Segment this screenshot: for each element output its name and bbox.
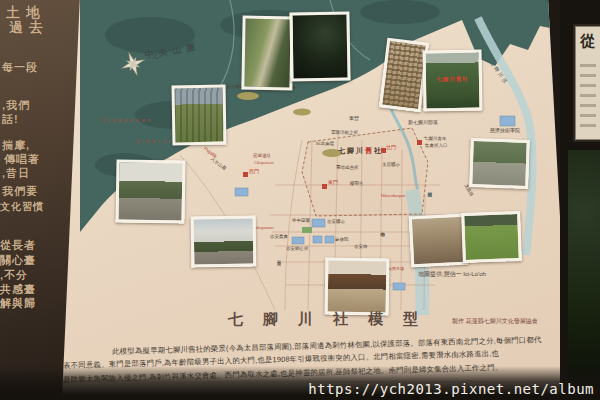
map-credit: 製作 花蓮縣七腳川文化發展協會: [452, 317, 538, 326]
panel-text-fragment: 關心臺: [0, 253, 36, 268]
map-label: Cipaponan: [102, 118, 153, 124]
plaque-text: 從: [575, 32, 600, 51]
map-label: 新七腳川部落: [408, 120, 438, 126]
map-photo-street: [191, 215, 257, 267]
map-photo-aerial: [379, 38, 429, 113]
plaque-smudge: [580, 57, 596, 127]
old-settlement-post: 社: [374, 147, 383, 154]
map-label: 西門: [249, 169, 259, 175]
map-label: Cikapuican: [254, 161, 274, 166]
map-label: 電信組合所: [336, 165, 359, 170]
panel-text-fragment: 揣摩,: [2, 138, 30, 153]
panel-text-fragment: 話!: [2, 112, 19, 127]
map-label: 慈濟技術學院: [490, 128, 520, 134]
photo-caption: 七腳川舊社: [426, 76, 479, 84]
panel-text-fragment: 傳唱著: [4, 152, 40, 167]
old-settlement-label: 七腳川舊社: [338, 146, 383, 156]
display-photo: 土 地過 去每一段,我們話!揣摩,傳唱著,昔日我們要文化習慣從長者關心臺,不分共…: [0, 0, 600, 400]
map-title: 七腳川社模型: [228, 310, 438, 329]
watermark-url: https://ych2013.pixnet.net/album: [308, 381, 594, 397]
map-photo-sepia: [409, 214, 469, 268]
map-label: 吉安農會: [270, 234, 288, 239]
panel-text-fragment: 我們要: [2, 184, 38, 199]
old-settlement-highlight: 舊: [365, 147, 374, 154]
panel-text-fragment: ,昔日: [2, 166, 30, 181]
map-photo-grass: [461, 211, 522, 263]
map-photo-fields: [171, 85, 226, 146]
panel-text-fragment: 共感臺: [0, 282, 36, 297]
map-label: 東門: [328, 180, 338, 186]
map-label: 七腳川青年: [424, 136, 447, 141]
map-label: 太昌國小: [382, 162, 400, 167]
watermark-strip: https://ych2013.pixnet.net/album: [0, 366, 600, 400]
panel-text-fragment: 從長者: [0, 238, 36, 253]
panel-text-fragment: 文化習慣: [0, 200, 44, 214]
map-label: 葫蘆遺址: [253, 153, 271, 158]
panel-text-fragment: ,我們: [2, 98, 30, 113]
map-photo-forest: [289, 11, 350, 81]
map-label: 黃昏市場: [388, 267, 404, 272]
map-label: 放牛田園: [292, 218, 310, 223]
right-panel: 從: [560, 0, 600, 400]
old-settlement-pre: 七腳川: [338, 147, 365, 154]
map-label: 北門: [386, 145, 396, 151]
map-photo-grove: 七腳川舊社: [422, 49, 482, 111]
map-label: Nikacidangan: [381, 194, 405, 199]
map-label: 瞭望台: [350, 181, 364, 186]
panel-text-fragment: 解與歸: [0, 296, 36, 311]
building-marker-green: [302, 227, 312, 233]
map-label: 集會所入口: [425, 143, 448, 148]
map-label: 吉安國小: [327, 219, 345, 224]
panel-text-fragment: ,不分: [0, 268, 28, 283]
map-photo-cliff: [241, 16, 293, 91]
map-source-note: 地圖提供:慧信一 Ici-Lo'oh: [418, 270, 486, 279]
map-photo-village: [115, 159, 185, 223]
map-label: 軍隊活動之所: [331, 130, 358, 135]
panel-text-fragment: 過 去: [9, 19, 44, 37]
map-label: 北: [152, 53, 158, 60]
map-label: 吉安路: [354, 244, 368, 249]
map-photo-shrine: [325, 257, 390, 315]
side-plaque: 從: [573, 24, 600, 142]
map-photo-park: [469, 138, 530, 189]
map-label: 吉安鄉公所: [286, 246, 309, 251]
map-label: 軍營: [349, 116, 359, 122]
side-photo: [568, 150, 600, 396]
panel-text-fragment: 每一段: [2, 60, 38, 75]
map-label: 紀念廣場: [316, 141, 334, 146]
map-label: 慶修院: [335, 237, 349, 242]
